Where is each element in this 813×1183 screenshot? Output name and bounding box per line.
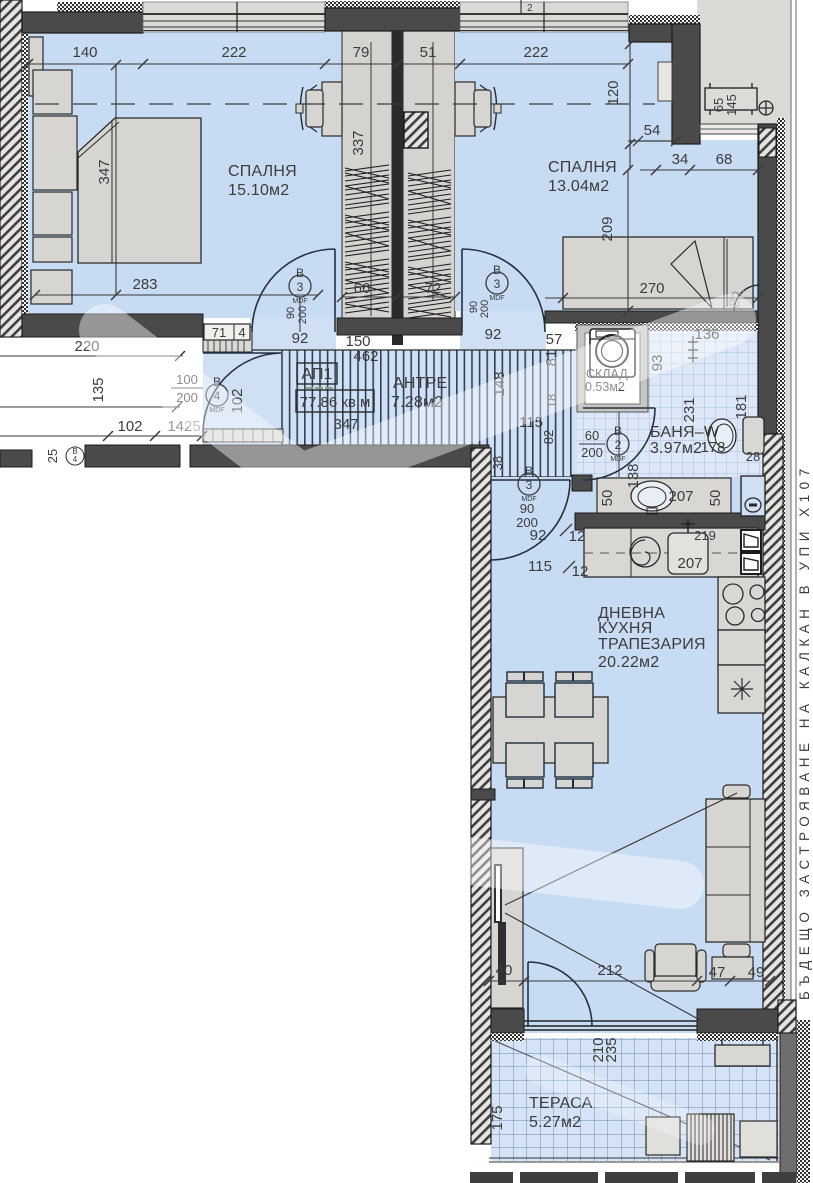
svg-text:200: 200 (581, 445, 603, 460)
svg-text:347: 347 (333, 416, 358, 433)
svg-text:92: 92 (530, 527, 547, 544)
svg-text:283: 283 (132, 276, 157, 293)
svg-text:140: 140 (72, 44, 97, 61)
svg-text:12: 12 (572, 563, 589, 580)
svg-text:49: 49 (748, 964, 765, 981)
svg-text:231: 231 (681, 397, 698, 422)
svg-text:50: 50 (707, 490, 724, 507)
svg-text:25: 25 (45, 449, 60, 463)
svg-text:90: 90 (285, 307, 297, 319)
svg-text:15.10м2: 15.10м2 (228, 182, 289, 199)
svg-text:КУХНЯ: КУХНЯ (598, 620, 652, 637)
svg-text:181: 181 (733, 394, 750, 419)
svg-text:200: 200 (479, 300, 491, 318)
svg-text:3: 3 (494, 277, 501, 291)
svg-text:4: 4 (238, 325, 245, 340)
svg-text:51: 51 (420, 44, 437, 61)
svg-text:ТРАПЕЗАРИЯ: ТРАПЕЗАРИЯ (598, 636, 706, 653)
svg-text:178: 178 (700, 439, 725, 456)
svg-text:В: В (614, 424, 622, 438)
svg-text:90: 90 (520, 501, 534, 516)
svg-text:82: 82 (541, 430, 556, 444)
svg-text:В: В (525, 464, 533, 478)
svg-text:209: 209 (599, 216, 616, 241)
svg-text:77.86 кв.м: 77.86 кв.м (300, 394, 371, 411)
svg-text:4: 4 (73, 455, 78, 464)
svg-text:57: 57 (546, 331, 563, 348)
svg-text:175: 175 (489, 1105, 506, 1130)
svg-text:212: 212 (597, 962, 622, 979)
svg-text:222: 222 (523, 44, 548, 61)
svg-text:207: 207 (668, 488, 693, 505)
svg-text:28: 28 (746, 449, 760, 464)
svg-text:MDF: MDF (292, 298, 307, 305)
svg-text:3: 3 (297, 280, 304, 294)
svg-text:3.97м2: 3.97м2 (650, 440, 702, 457)
svg-text:92: 92 (292, 330, 309, 347)
svg-text:40: 40 (496, 962, 513, 979)
svg-text:50: 50 (599, 490, 616, 507)
svg-text:12: 12 (569, 528, 586, 545)
svg-text:72: 72 (425, 280, 442, 297)
svg-text:145: 145 (724, 94, 739, 116)
svg-text:47: 47 (709, 964, 726, 981)
svg-text:337: 337 (350, 130, 367, 155)
svg-text:79: 79 (353, 44, 370, 61)
svg-text:462: 462 (353, 348, 378, 365)
svg-text:102: 102 (117, 418, 142, 435)
svg-text:3: 3 (526, 478, 533, 492)
svg-text:В: В (296, 266, 304, 280)
svg-text:АНТРЕ: АНТРЕ (393, 375, 447, 392)
svg-text:92: 92 (485, 326, 502, 343)
svg-text:5.27м2: 5.27м2 (529, 1114, 581, 1131)
svg-text:БАНЯ–W: БАНЯ–W (650, 424, 720, 441)
svg-text:СПАЛНЯ: СПАЛНЯ (548, 159, 617, 176)
svg-text:68: 68 (716, 151, 733, 168)
svg-text:38: 38 (490, 456, 505, 470)
svg-text:MDF: MDF (610, 456, 625, 463)
svg-text:219: 219 (694, 528, 716, 543)
svg-text:СПАЛНЯ: СПАЛНЯ (228, 163, 297, 180)
svg-text:2: 2 (615, 438, 622, 452)
svg-text:60: 60 (585, 428, 599, 443)
svg-text:54: 54 (644, 122, 661, 139)
svg-text:207: 207 (677, 555, 702, 572)
svg-text:71: 71 (212, 325, 226, 340)
svg-text:13.04м2: 13.04м2 (548, 178, 609, 195)
svg-text:20.22м2: 20.22м2 (598, 654, 659, 671)
svg-text:MDF: MDF (489, 295, 504, 302)
svg-text:АП1: АП1 (302, 366, 333, 383)
svg-text:120: 120 (605, 80, 622, 105)
svg-text:115: 115 (528, 558, 552, 575)
svg-text:270: 270 (639, 280, 664, 297)
svg-text:200: 200 (297, 306, 309, 324)
svg-text:138: 138 (625, 463, 642, 488)
svg-text:34: 34 (672, 151, 689, 168)
svg-text:БЪДЕЩО ЗАСТРОЯВАНЕ НА КАЛКАН В: БЪДЕЩО ЗАСТРОЯВАНЕ НА КАЛКАН В УПИ X107 (797, 463, 812, 1000)
svg-text:66: 66 (354, 280, 371, 297)
svg-text:235: 235 (603, 1037, 620, 1062)
svg-text:2: 2 (527, 3, 533, 14)
svg-text:222: 222 (221, 44, 246, 61)
svg-text:347: 347 (96, 159, 113, 184)
svg-text:135: 135 (90, 377, 107, 402)
svg-text:В: В (493, 263, 501, 277)
